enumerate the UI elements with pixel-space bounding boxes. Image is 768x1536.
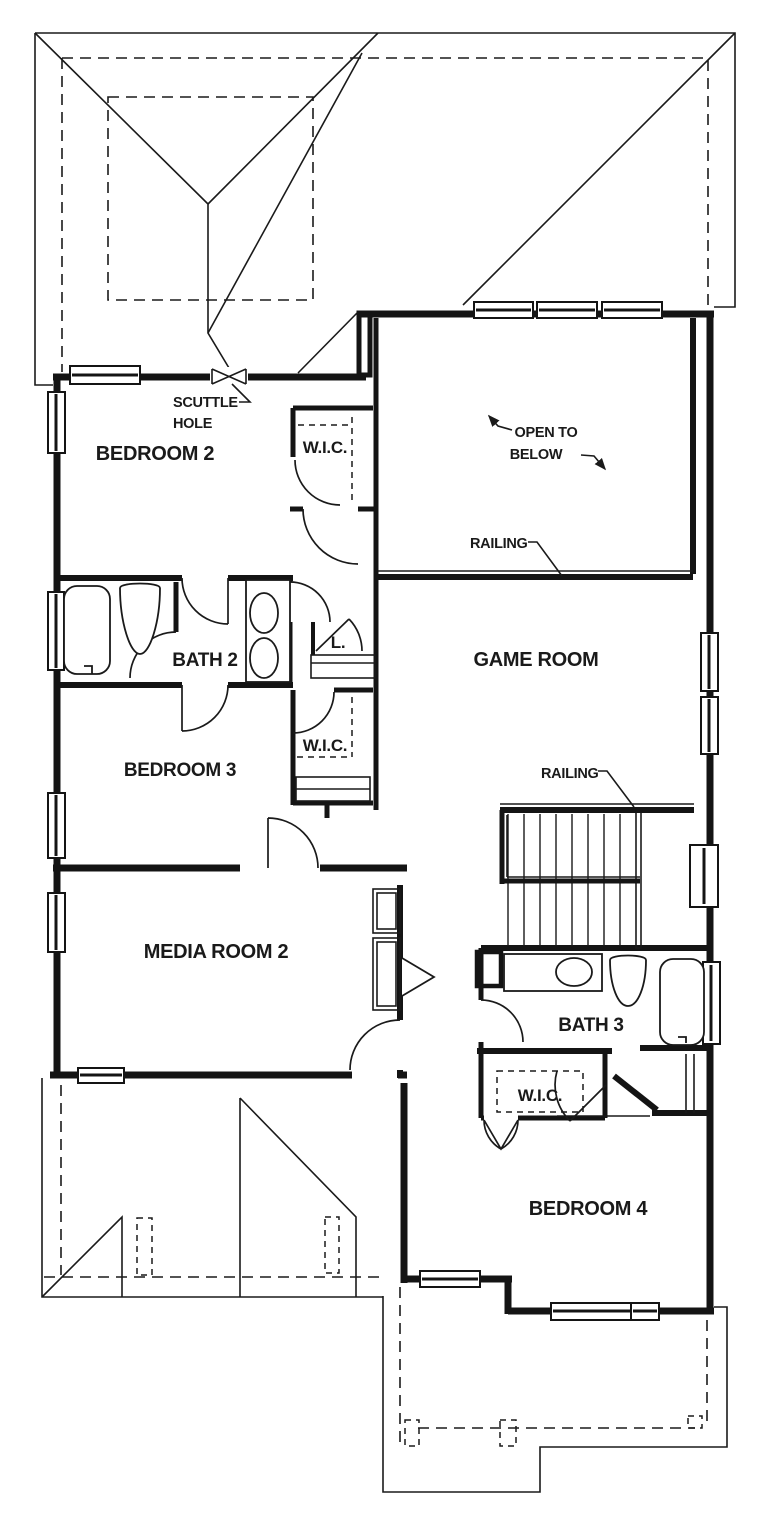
roof-eave-left bbox=[35, 33, 53, 385]
bath3-toilet-icon bbox=[610, 956, 646, 1007]
window bbox=[701, 697, 718, 754]
window bbox=[420, 1271, 480, 1287]
media-room2-label: MEDIA ROOM 2 bbox=[144, 941, 289, 963]
bed4-linen-shelves bbox=[686, 1054, 694, 1113]
railing-leader-stairs bbox=[598, 771, 634, 807]
window bbox=[48, 392, 65, 453]
window bbox=[70, 366, 140, 384]
scuttle-label-line2: HOLE bbox=[173, 416, 213, 432]
bath3-label: BATH 3 bbox=[558, 1015, 623, 1036]
porch-column-dashed bbox=[500, 1420, 516, 1446]
media-closet-door-flap bbox=[402, 958, 434, 996]
window bbox=[690, 845, 718, 907]
wic-bedroom2-label: W.I.C. bbox=[303, 438, 347, 457]
garage-column-dashed bbox=[137, 1218, 152, 1275]
bedroom3-label: BEDROOM 3 bbox=[124, 760, 236, 781]
porch-column-dashed bbox=[688, 1416, 702, 1428]
bedroom4-label: BEDROOM 4 bbox=[529, 1198, 649, 1220]
roof-plan-garage bbox=[42, 1078, 383, 1297]
door-hall-bath2 bbox=[290, 582, 330, 622]
floor-plan-drawing: SCUTTLE HOLE BEDROOM 2 W.I.C. OPEN TO BE… bbox=[0, 0, 768, 1536]
open-below-label-line2: BELOW bbox=[510, 447, 563, 463]
linen-shelf bbox=[311, 655, 375, 678]
roof-valley-small bbox=[298, 312, 358, 373]
roof-hip-left bbox=[35, 33, 232, 373]
wall-wic4 bbox=[481, 1051, 605, 1118]
game-room-label: GAME ROOM bbox=[473, 649, 598, 671]
window bbox=[474, 302, 533, 318]
bath3-tub-icon bbox=[660, 959, 704, 1045]
railing-openbelow-label: RAILING bbox=[470, 536, 528, 552]
garage-roof-hip2 bbox=[240, 1098, 356, 1297]
window bbox=[537, 302, 597, 318]
bath3-sink-icon bbox=[556, 958, 592, 986]
floor-plan-sheet: SCUTTLE HOLE BEDROOM 2 W.I.C. OPEN TO BE… bbox=[0, 0, 768, 1536]
roof-outline bbox=[35, 33, 735, 307]
wic2-dashed-shelf bbox=[298, 417, 352, 500]
open-below-arrow-se bbox=[581, 455, 605, 469]
scuttle-label-line1: SCUTTLE bbox=[173, 395, 238, 411]
roof-plan-upper bbox=[35, 33, 735, 385]
door-hall bbox=[303, 509, 358, 564]
linen-label: L. bbox=[331, 633, 346, 652]
garage-column-dashed bbox=[325, 1217, 339, 1273]
door-bath3 bbox=[481, 1000, 523, 1042]
wall-chase bbox=[359, 313, 370, 375]
window bbox=[48, 793, 65, 858]
wall-wic2 bbox=[290, 408, 376, 509]
open-below-label-line1: OPEN TO bbox=[515, 425, 578, 441]
garage-roof-outline bbox=[42, 1078, 383, 1297]
door-media bbox=[350, 1020, 400, 1070]
roof-valley-left bbox=[208, 53, 362, 333]
window bbox=[703, 962, 720, 1044]
roof-valley-right bbox=[463, 33, 735, 305]
door-wic2 bbox=[295, 460, 340, 505]
door-bed2-bath2 bbox=[182, 578, 228, 624]
interior-walls bbox=[53, 318, 710, 1118]
scuttle-hole-icon bbox=[210, 367, 248, 386]
wall-bed4-diagonal bbox=[614, 1076, 657, 1110]
window bbox=[701, 633, 718, 691]
open-below-arrow-nw bbox=[489, 416, 512, 430]
bath2-sink1-icon bbox=[250, 593, 278, 633]
media-closet-b-inner bbox=[377, 942, 396, 1006]
door-bath2-bed3 bbox=[182, 685, 228, 731]
porch-roof-outline bbox=[383, 1296, 727, 1492]
railing-stairs-label: RAILING bbox=[541, 766, 599, 782]
window bbox=[48, 893, 65, 952]
bath2-tub-icon bbox=[64, 586, 110, 674]
bath2-sink2-icon bbox=[250, 638, 278, 678]
door-wic4-double bbox=[484, 1120, 518, 1149]
garage-roof-hip1 bbox=[42, 1217, 122, 1297]
door-wic3 bbox=[293, 692, 334, 733]
bath2-toilet-icon bbox=[120, 584, 160, 655]
window bbox=[631, 1303, 659, 1320]
door-bed4 bbox=[555, 1071, 606, 1121]
window bbox=[48, 592, 64, 670]
door-bed3 bbox=[268, 818, 318, 868]
porch-column-dashed bbox=[405, 1420, 419, 1446]
bedroom2-label: BEDROOM 2 bbox=[96, 443, 215, 465]
media-closet-a-inner bbox=[377, 893, 396, 929]
roof-overhang-dashed bbox=[62, 58, 708, 312]
window bbox=[602, 302, 662, 318]
wic-bedroom4-label: W.I.C. bbox=[518, 1086, 562, 1105]
window bbox=[78, 1068, 124, 1083]
stairs-and-railings bbox=[378, 571, 694, 948]
wic-bedroom3-label: W.I.C. bbox=[303, 736, 347, 755]
window bbox=[551, 1303, 632, 1320]
bath2-label: BATH 2 bbox=[172, 650, 237, 671]
